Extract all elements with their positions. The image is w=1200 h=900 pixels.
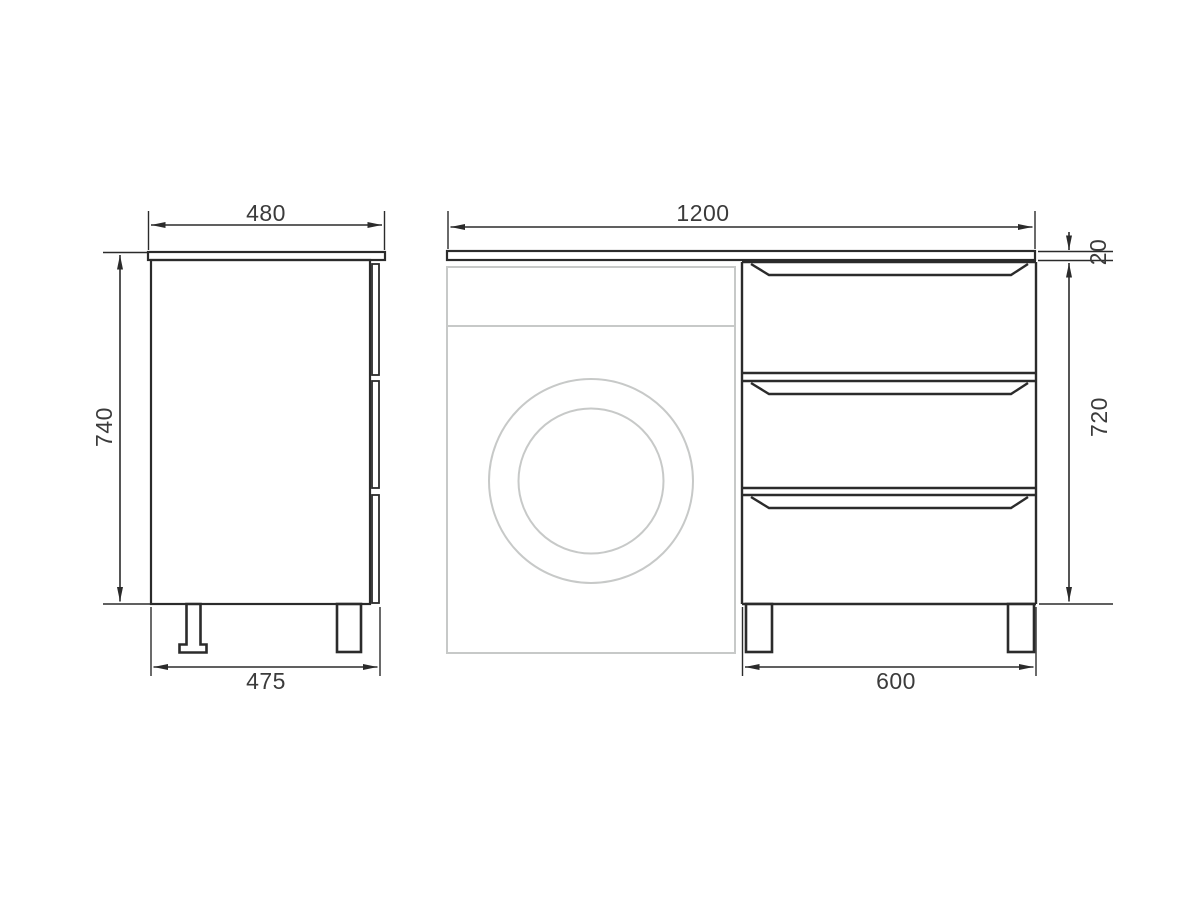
- drawer-1: [742, 262, 1036, 373]
- dimension-drawer-unit-width: 600: [743, 607, 1037, 694]
- front-left-leg: [746, 604, 772, 652]
- washing-machine-door-inner: [519, 409, 664, 554]
- dim-600-label: 600: [876, 668, 916, 694]
- dimension-front-height: 720: [1039, 263, 1113, 604]
- dimension-countertop-thickness: 20: [1038, 232, 1113, 265]
- drawer-handle-groove: [751, 264, 1028, 275]
- side-drawer-edge-1: [372, 264, 379, 375]
- side-view: 480 740 475: [91, 200, 385, 694]
- dim-480-label: 480: [246, 200, 286, 226]
- front-view: 1200 20 720 600: [447, 200, 1113, 694]
- drawer-unit: [742, 262, 1036, 604]
- dim-20-label: 20: [1085, 239, 1111, 266]
- drawer-handle-groove: [751, 497, 1028, 508]
- side-drawer-edge-3: [372, 495, 379, 603]
- washing-machine: [447, 267, 735, 653]
- vanity-dimension-drawing: 480 740 475: [0, 0, 1200, 900]
- drawer-2: [742, 381, 1036, 488]
- dimension-front-total-width: 1200: [448, 200, 1035, 249]
- side-front-leg: [180, 604, 207, 653]
- drawer-handle-groove: [751, 383, 1028, 394]
- washing-machine-door-outer: [489, 379, 693, 583]
- dimension-side-top-width: 480: [149, 200, 385, 250]
- drawer-3: [742, 495, 1036, 508]
- front-right-leg: [1008, 604, 1034, 652]
- side-back-leg: [337, 604, 361, 652]
- side-countertop: [148, 252, 385, 260]
- technical-drawing-canvas: 480 740 475: [0, 0, 1200, 900]
- dim-720-label: 720: [1086, 397, 1112, 437]
- dimension-side-height: 740: [91, 253, 150, 605]
- side-cabinet-body: [151, 260, 370, 604]
- side-drawer-edge-2: [372, 381, 379, 488]
- dim-475-label: 475: [246, 668, 286, 694]
- dim-740-label: 740: [91, 407, 117, 447]
- front-countertop: [447, 251, 1035, 260]
- dim-1200-label: 1200: [676, 200, 729, 226]
